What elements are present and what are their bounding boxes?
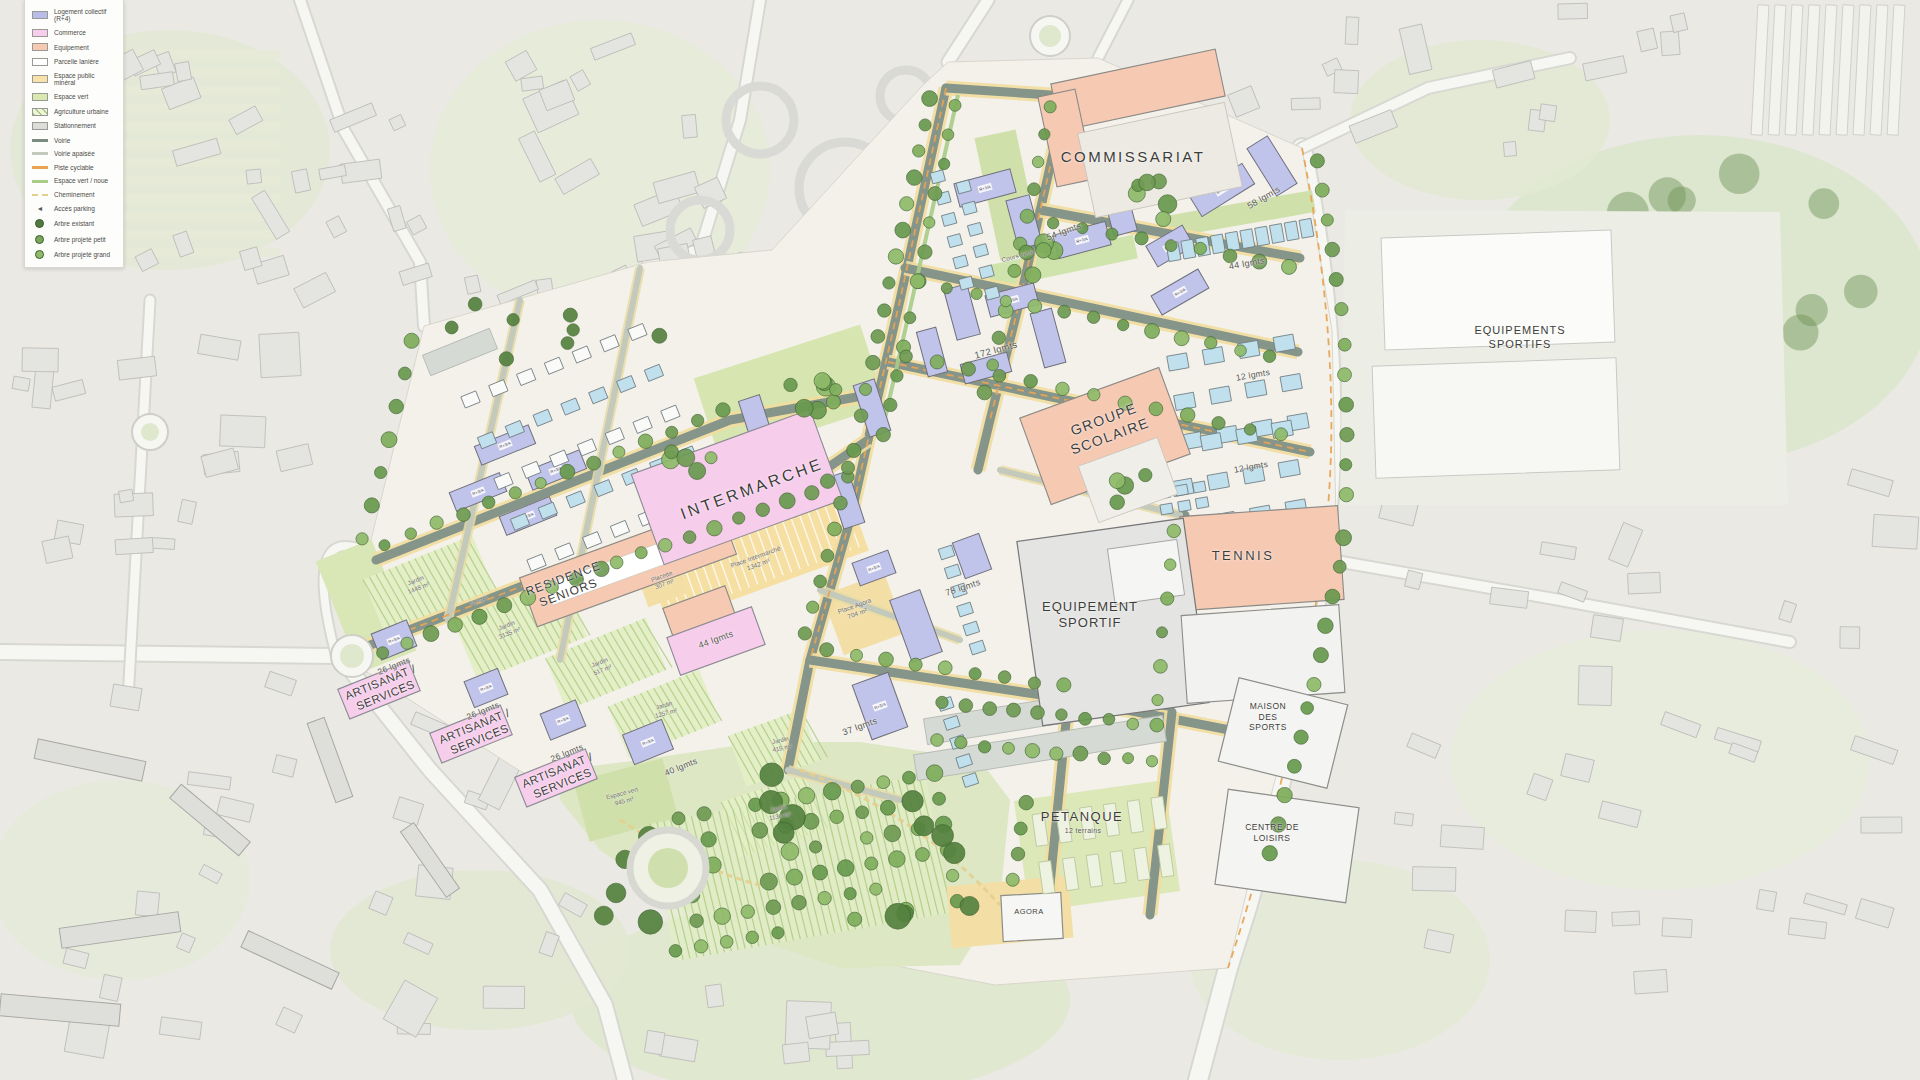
legend-item: Voirie xyxy=(32,137,117,144)
legend-item-label: Cheminement xyxy=(54,191,94,198)
legend-item-label: Parcelle lanière xyxy=(54,58,99,65)
legend-swatch xyxy=(32,180,48,183)
legend-item-label: Arbre existant xyxy=(54,220,94,227)
legend-swatch xyxy=(32,11,48,19)
legend-swatch xyxy=(32,122,48,130)
legend-swatch xyxy=(32,29,48,37)
legend-swatch xyxy=(32,166,48,169)
legend-item: Piste cyclable xyxy=(32,164,117,171)
tree-icon xyxy=(35,219,44,228)
legend-item: Logement collectif (R+4) xyxy=(32,8,117,22)
legend-item-label: Arbre projeté petit xyxy=(54,236,106,243)
legend-item: Equipement xyxy=(32,43,117,51)
legend: Logement collectif (R+4)CommerceEquipeme… xyxy=(24,0,124,268)
tree-icon xyxy=(35,250,44,259)
legend-item: Commerce xyxy=(32,29,117,37)
legend-item-label: Stationnement xyxy=(54,122,96,129)
legend-item-label: Commerce xyxy=(54,29,86,36)
legend-item-label: Equipement xyxy=(54,44,89,51)
parking-access-icon: ◄ xyxy=(32,205,48,213)
legend-item: Arbre existant xyxy=(32,219,117,228)
legend-item: Stationnement xyxy=(32,122,117,130)
legend-swatch xyxy=(32,194,48,196)
legend-item-label: Voirie apaisée xyxy=(54,150,95,157)
legend-item-label: Espace vert xyxy=(54,93,88,100)
legend-item-label: Piste cyclable xyxy=(54,164,94,171)
legend-item-label: Accès parking xyxy=(54,205,95,212)
legend-item-label: Logement collectif (R+4) xyxy=(54,8,117,22)
legend-item: Parcelle lanière xyxy=(32,58,117,66)
legend-swatch xyxy=(32,43,48,51)
legend-swatch xyxy=(32,58,48,66)
tree-icon xyxy=(35,235,44,244)
legend-item: Agriculture urbaine xyxy=(32,108,117,116)
legend-item-label: Espace public minéral xyxy=(54,72,117,86)
map-canvas: R+3/AR+3/AR+3/AR+3/AR+3/AR+3/AR+3/AR+3/A… xyxy=(0,0,1920,1080)
legend-item-label: Arbre projeté grand xyxy=(54,251,110,258)
legend-swatch xyxy=(32,152,48,155)
legend-swatch xyxy=(32,139,48,142)
legend-item: Arbre projeté grand xyxy=(32,250,117,259)
legend-item: Espace public minéral xyxy=(32,72,117,86)
legend-swatch xyxy=(32,93,48,101)
legend-item: Espace vert xyxy=(32,93,117,101)
legend-item: Espace vert / noue xyxy=(32,177,117,184)
legend-item-label: Espace vert / noue xyxy=(54,177,108,184)
legend-item-label: Agriculture urbaine xyxy=(54,108,109,115)
legend-item-label: Voirie xyxy=(54,137,70,144)
masterplan-map: R+3/AR+3/AR+3/AR+3/AR+3/AR+3/AR+3/AR+3/A… xyxy=(0,0,1920,1080)
legend-item: Arbre projeté petit xyxy=(32,235,117,244)
legend-swatch xyxy=(32,108,48,116)
legend-item: ◄Accès parking xyxy=(32,205,117,213)
legend-item: Cheminement xyxy=(32,191,117,198)
legend-item: Voirie apaisée xyxy=(32,150,117,157)
legend-swatch xyxy=(32,75,48,83)
